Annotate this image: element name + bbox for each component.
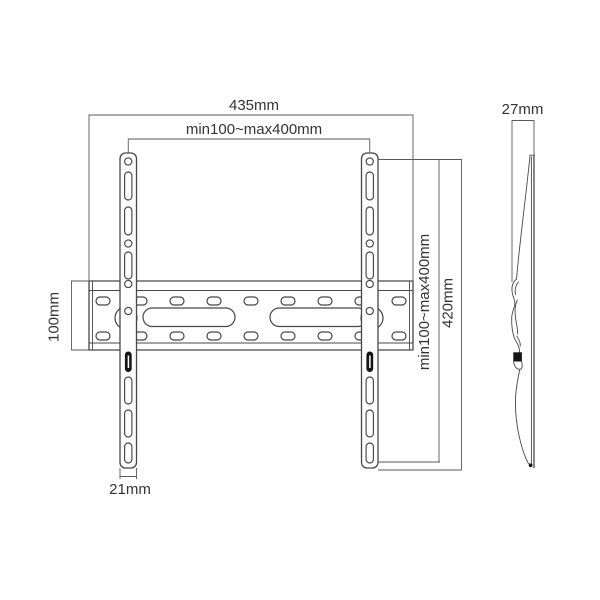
vesa-width-label: min100~max400mm xyxy=(186,121,322,138)
rail-slot xyxy=(170,297,184,305)
rail-height-label: 100mm xyxy=(46,292,63,342)
rail-large-slot xyxy=(270,308,367,327)
dimension-rail-height: 100mm xyxy=(46,281,90,350)
hook-inner-detail xyxy=(515,300,518,334)
dimension-vesa-height: min100~max400mm xyxy=(378,160,440,463)
rail-slot xyxy=(318,332,332,340)
profile-depth-label: 27mm xyxy=(502,101,544,118)
rail-slot xyxy=(207,332,221,340)
total-width-label: 435mm xyxy=(229,97,279,114)
rail-slot xyxy=(96,332,110,340)
rail-slot xyxy=(244,297,258,305)
right-bracket-arm xyxy=(362,153,379,468)
rail-large-slot xyxy=(143,308,235,327)
rail-slot-row-top xyxy=(96,297,406,305)
rail-slot xyxy=(281,297,295,305)
bracket-height-label: 420mm xyxy=(440,278,457,328)
lock-block xyxy=(513,352,522,361)
front-view: 435mm min100~max400mm 100mm 21mm min100~… xyxy=(46,97,462,498)
side-view: 27mm xyxy=(502,101,544,468)
profile-front-lower-curve xyxy=(515,370,531,467)
rail-slot xyxy=(392,297,406,305)
bracket-width-label: 21mm xyxy=(109,481,151,498)
rail-slot xyxy=(207,297,221,305)
rail-slot xyxy=(392,332,406,340)
dimension-line xyxy=(120,468,137,479)
mount-dimension-drawing: 435mm min100~max400mm 100mm 21mm min100~… xyxy=(0,0,600,600)
rail-slot xyxy=(170,332,184,340)
dimension-line xyxy=(128,139,370,153)
profile-bottom-tip xyxy=(529,463,533,467)
rail-slot-row-bottom xyxy=(96,332,406,340)
side-profile xyxy=(512,155,534,468)
hook-lower-curl xyxy=(514,362,523,370)
rail-slot xyxy=(244,332,258,340)
diagram-page: 435mm min100~max400mm 100mm 21mm min100~… xyxy=(0,0,600,600)
rail-slot xyxy=(318,297,332,305)
dimension-line xyxy=(512,121,534,283)
dimension-line xyxy=(72,281,90,350)
left-bracket-arm xyxy=(120,153,137,468)
dimension-vesa-width: min100~max400mm xyxy=(128,121,370,153)
rail-slot xyxy=(281,332,295,340)
profile-front-upper-curve xyxy=(517,156,530,279)
dimension-profile-depth: 27mm xyxy=(502,101,544,282)
vesa-height-label: min100~max400mm xyxy=(416,234,433,370)
dimension-bracket-width: 21mm xyxy=(109,468,151,498)
rail-slot xyxy=(96,297,110,305)
hook-inner-detail xyxy=(515,282,518,295)
